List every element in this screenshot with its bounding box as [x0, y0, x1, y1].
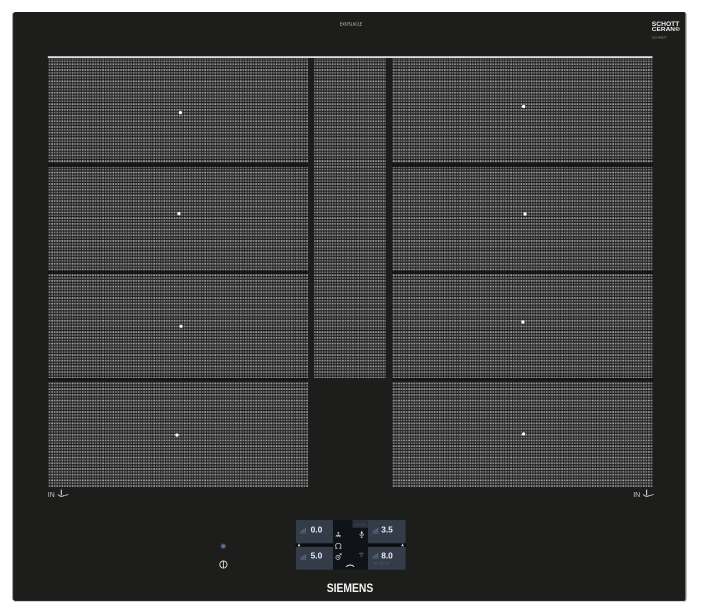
svg-text:12:34: 12:34	[355, 523, 366, 527]
svg-text:IN: IN	[633, 492, 640, 499]
svg-text:EX675LXC1E: EX675LXC1E	[340, 21, 363, 26]
svg-text:5.0: 5.0	[311, 551, 323, 561]
svg-text:0.0: 0.0	[311, 524, 323, 534]
svg-text:3.5: 3.5	[381, 524, 393, 534]
svg-text:SIEMENS: SIEMENS	[327, 583, 374, 595]
svg-text:CERAN®: CERAN®	[652, 26, 680, 33]
svg-text:8.0: 8.0	[381, 551, 393, 561]
svg-text:IN: IN	[48, 492, 55, 499]
svg-text:1h 03:25: 1h 03:25	[373, 562, 389, 566]
svg-text:SCHMIDT: SCHMIDT	[652, 36, 667, 40]
